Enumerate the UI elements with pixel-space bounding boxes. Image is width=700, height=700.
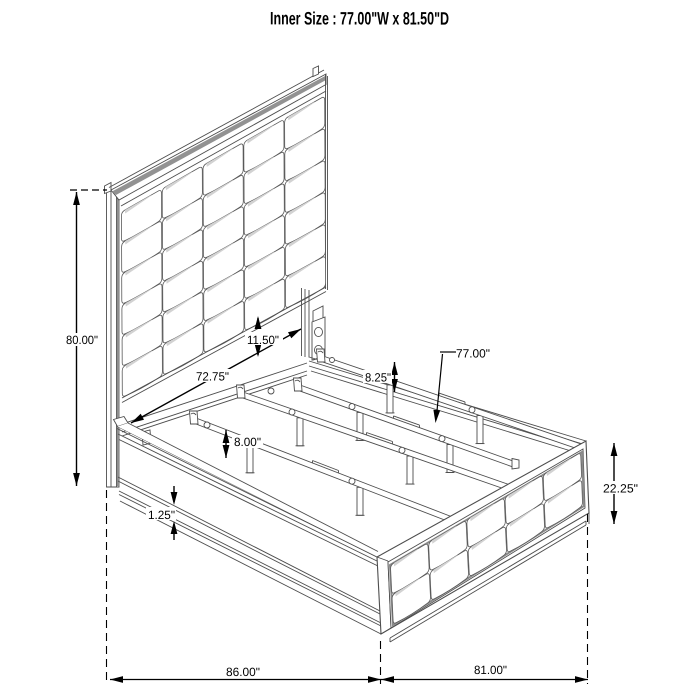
svg-text:8.00": 8.00" — [234, 435, 261, 449]
svg-text:22.25": 22.25" — [603, 481, 638, 495]
svg-text:77.00": 77.00" — [456, 347, 490, 361]
svg-text:80.00": 80.00" — [66, 333, 98, 347]
svg-text:8.25": 8.25" — [365, 370, 391, 384]
svg-text:11.50": 11.50" — [247, 333, 279, 347]
svg-text:81.00": 81.00" — [474, 663, 507, 677]
svg-text:72.75": 72.75" — [196, 369, 229, 383]
svg-text:86.00": 86.00" — [226, 665, 260, 679]
svg-text:1.25": 1.25" — [148, 508, 175, 522]
svg-text:Inner Size : 77.00"W x 81.50"D: Inner Size : 77.00"W x 81.50"D — [270, 8, 449, 28]
